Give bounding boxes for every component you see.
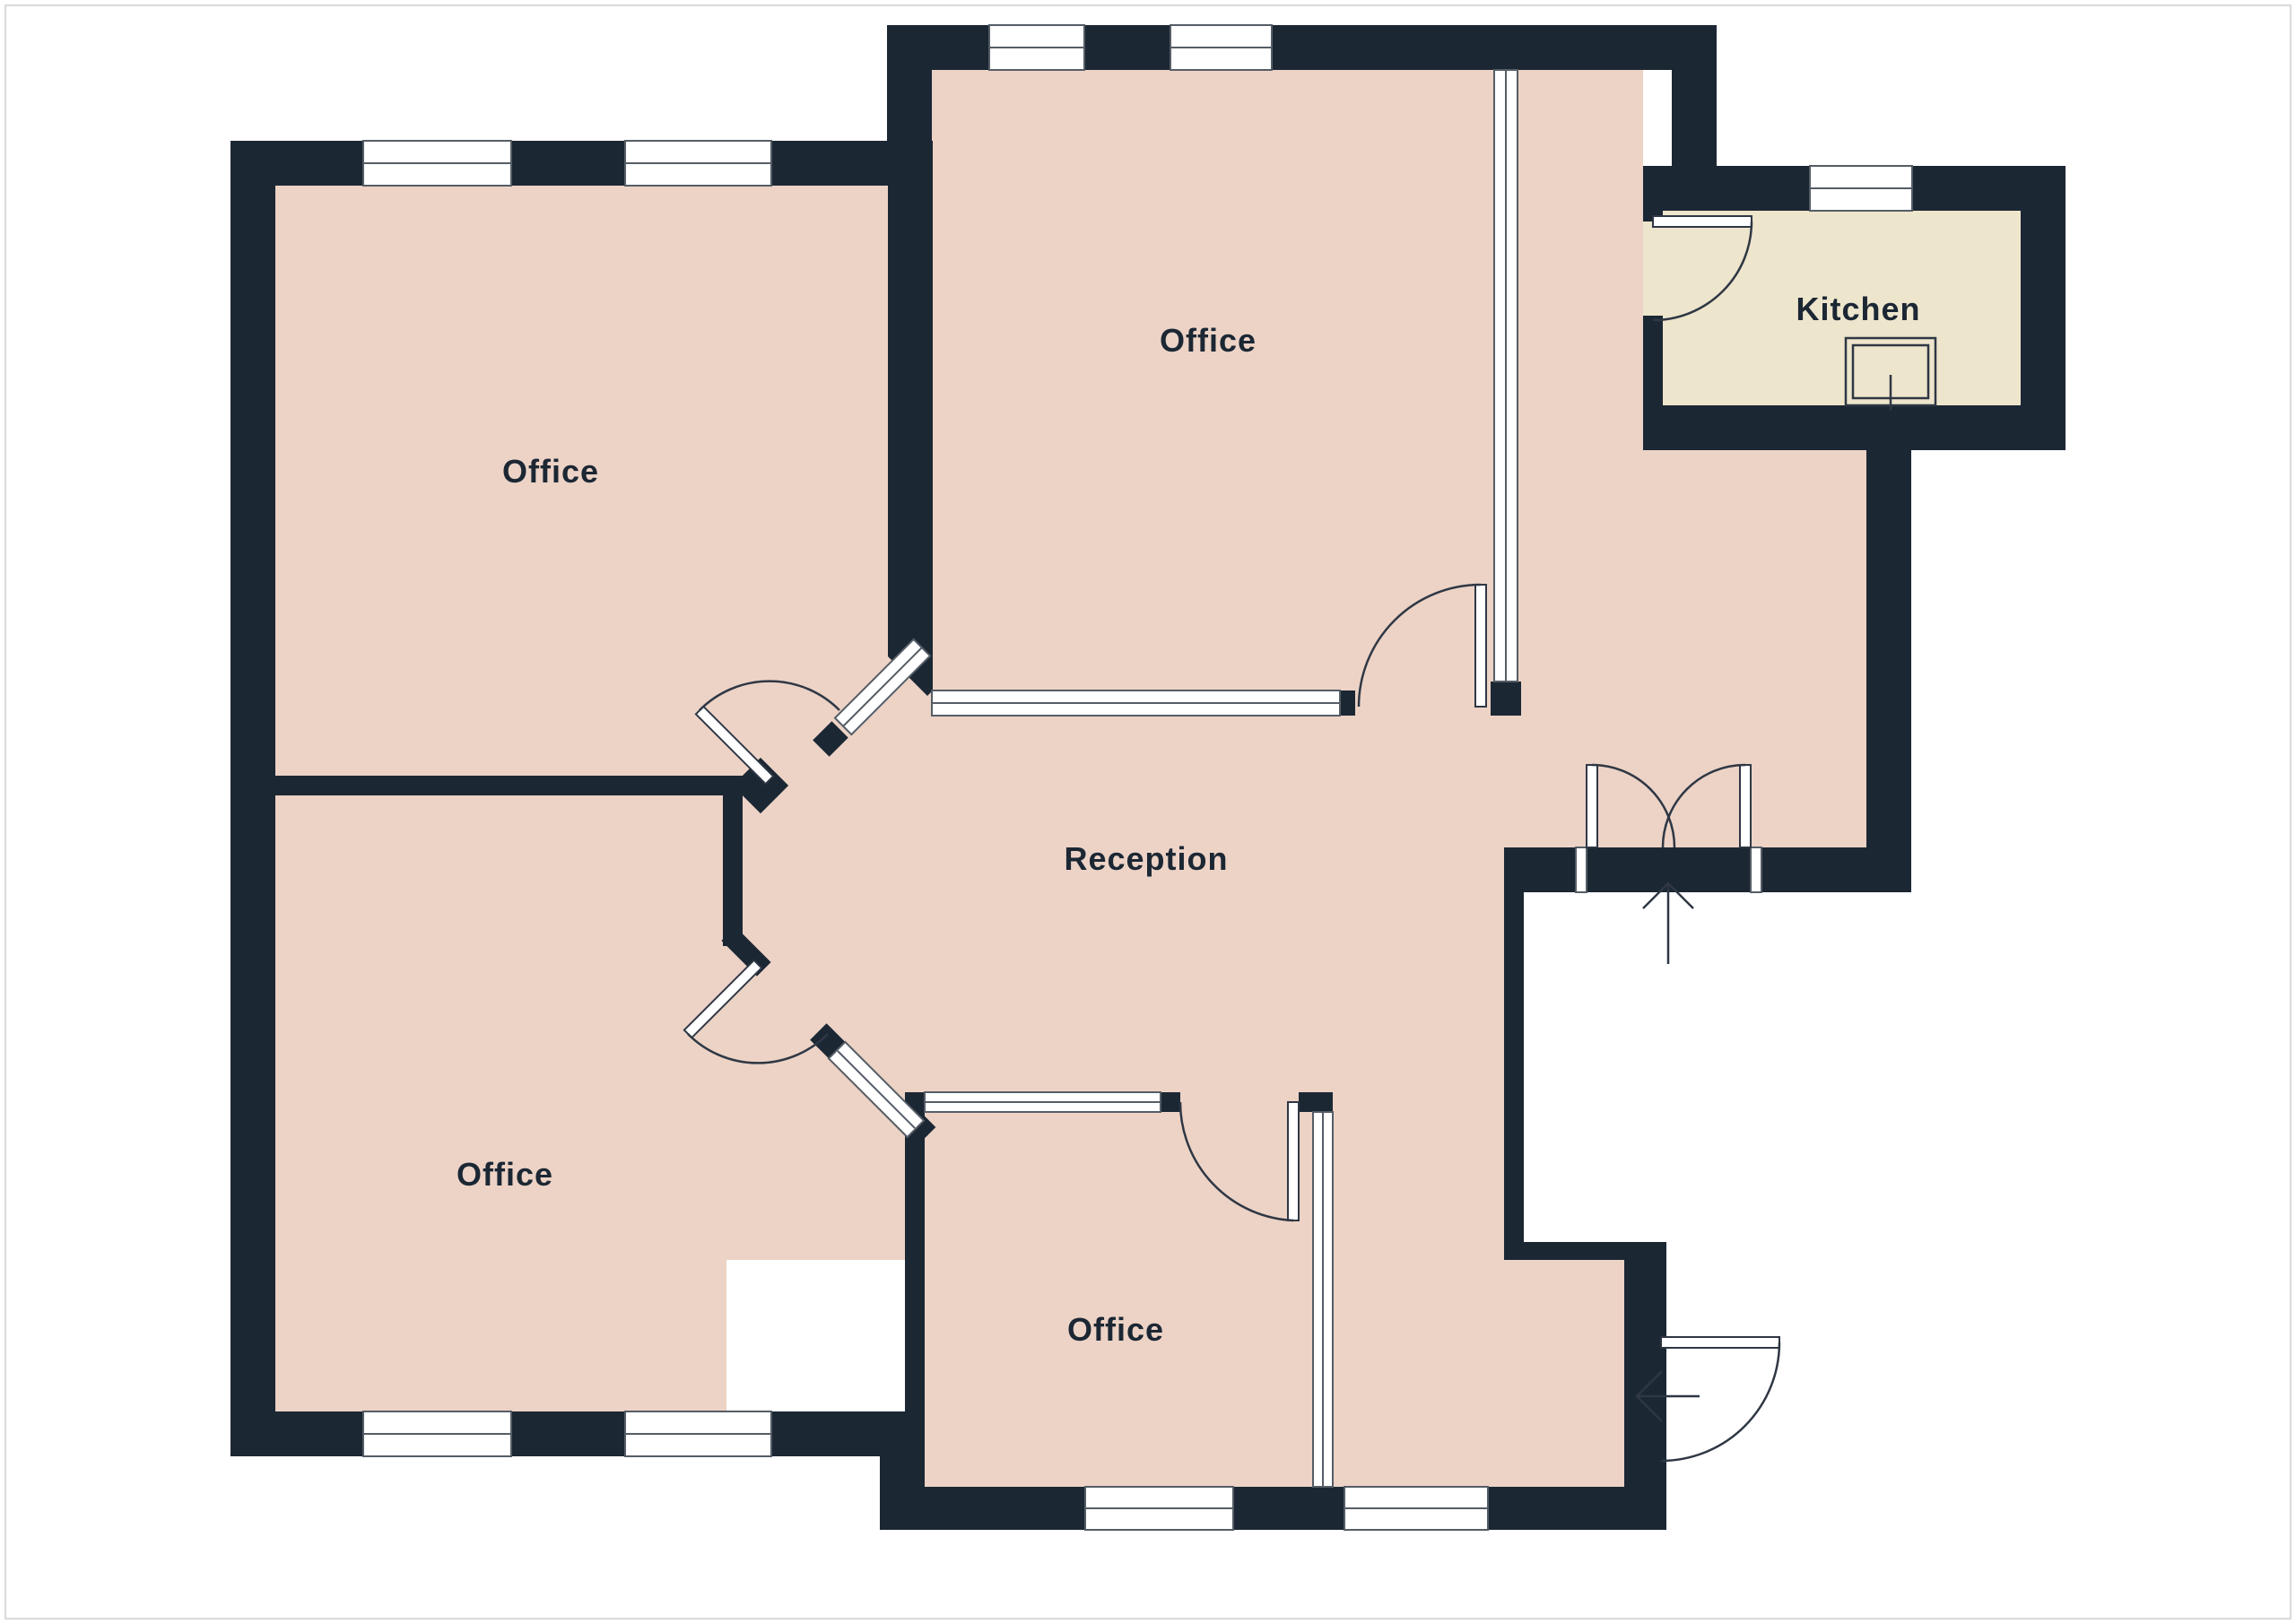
wall-lightwell-left (1504, 847, 1524, 1260)
room-label-office-bottom-left: Office (457, 1156, 553, 1193)
door-office-top-panel (1475, 585, 1486, 707)
wall-post-partition-top (1299, 1092, 1333, 1112)
wall-reception-right (1866, 450, 1911, 892)
wall-between-top-offices (888, 141, 933, 610)
door-side-entry-arc (1661, 1342, 1779, 1461)
door-main-jamb-right (1751, 847, 1761, 892)
wall-reception-bottom (1504, 847, 1911, 892)
wall-post-glassband-end (1340, 690, 1355, 716)
room-label-office-top-left: Office (502, 453, 599, 490)
wall-left-section-bottom (230, 1411, 925, 1456)
floor-office-bottom-left (275, 776, 726, 1411)
wall-left-section-top (230, 141, 932, 186)
wall-kitchen-partition-lower (1643, 316, 1663, 405)
floor-office-bottom (925, 1092, 1504, 1487)
wall-left (230, 141, 275, 1456)
door-kitchen-panel (1653, 216, 1752, 227)
door-main-panel-left (1587, 765, 1597, 847)
wall-between-left-offices (275, 776, 749, 795)
floor-vestibule (1504, 1260, 1624, 1487)
room-label-reception: Reception (1064, 840, 1228, 877)
wall-post-corridor-glass (1491, 682, 1521, 716)
wall-bottom-section-bottom (880, 1487, 1666, 1530)
wall-center-right (1672, 25, 1717, 166)
door-main-jamb-left (1576, 847, 1587, 892)
floor-plan-page: Office Office Kitchen Reception Office O… (0, 0, 2296, 1624)
door-side-entry-panel (1661, 1337, 1779, 1348)
wall-post-band-right (1161, 1092, 1180, 1112)
wall-office-bottom-left-side (905, 1112, 925, 1487)
room-label-office-top: Office (1160, 322, 1257, 359)
arrow-up-icon (1643, 883, 1693, 964)
door-main-panel-right (1740, 765, 1751, 847)
room-label-kitchen: Kitchen (1796, 291, 1920, 327)
room-label-office-bottom: Office (1067, 1311, 1164, 1348)
wall-kitchen-bottom (1643, 405, 2066, 450)
wall-lightwell-bottom (1524, 1242, 1666, 1260)
door-office-bottom-panel (1288, 1102, 1299, 1220)
wall-office-bottom-left-right (723, 795, 743, 946)
floor-plan-canvas: Office Office Kitchen Reception Office O… (0, 0, 2296, 1624)
